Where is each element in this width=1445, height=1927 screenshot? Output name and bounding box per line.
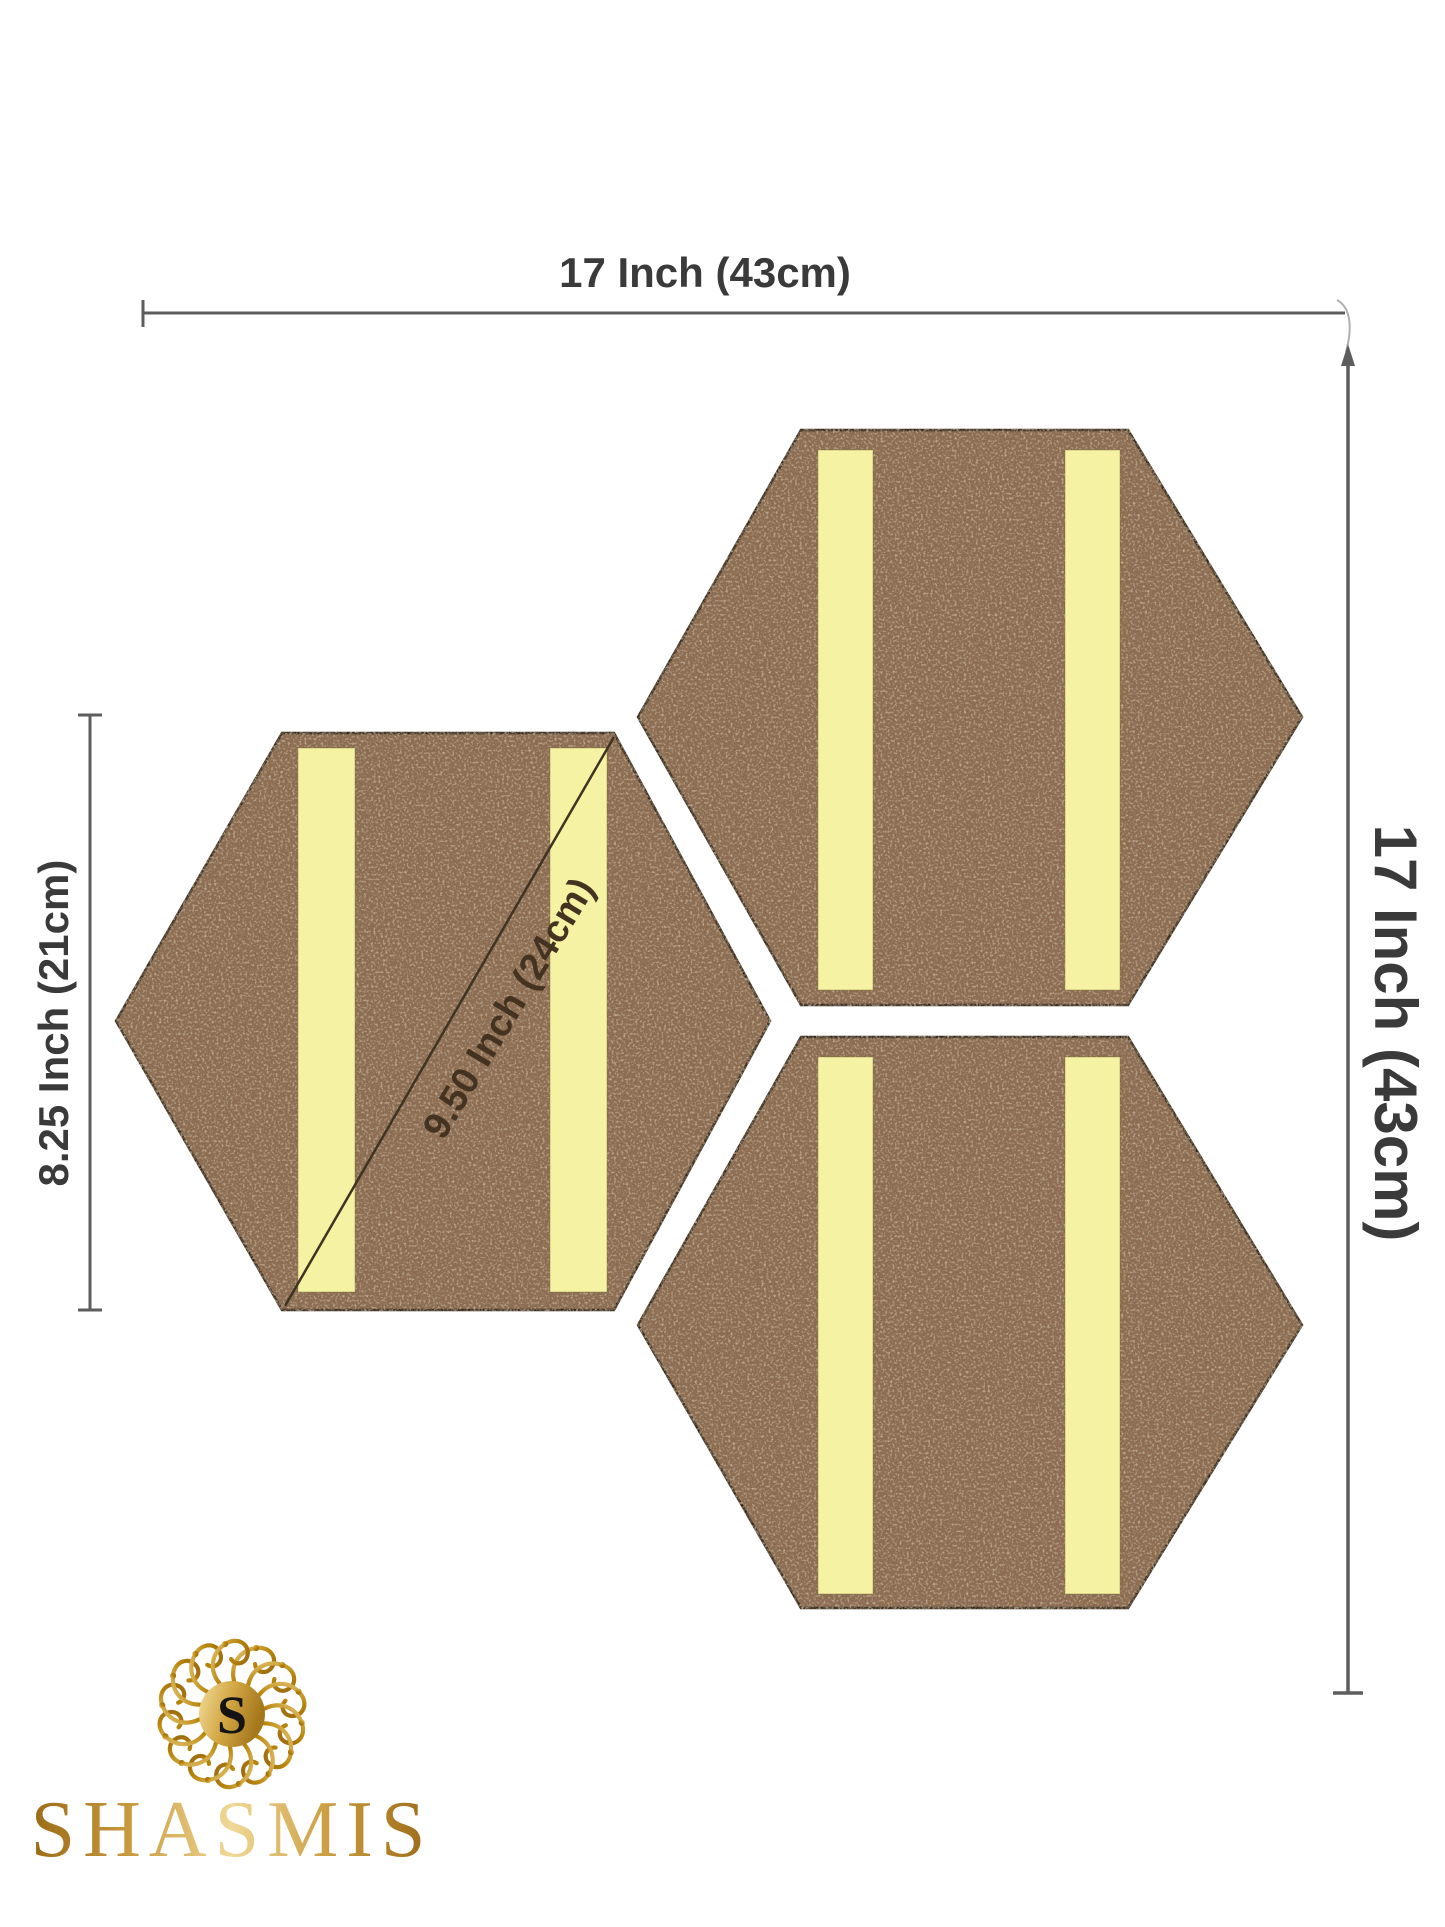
- brand-logo: S SHASMIS: [31, 1634, 434, 1874]
- dimension-arrow-up: [1341, 344, 1355, 366]
- cork-hexagon-tile-left: [116, 733, 770, 1310]
- width-dimension-label: 17 Inch (43cm): [405, 250, 1005, 296]
- tile-height-dimension-label: 8.25 Inch (21cm): [31, 723, 77, 1323]
- cork-hexagon-tile-top-right: [638, 430, 1302, 1005]
- product-dimension-diagram: S SHASMIS 17 Inch (43cm) 17 Inch (43cm) …: [0, 0, 1445, 1927]
- brand-monogram: S: [217, 1685, 247, 1745]
- cork-tiles-group: [116, 430, 1302, 1608]
- adhesive-strip: [818, 1057, 873, 1594]
- adhesive-strip: [1065, 450, 1120, 990]
- dimension-corner-curve: [1337, 300, 1350, 352]
- adhesive-strip: [1065, 1057, 1120, 1594]
- cork-hexagon-tile-bottom-right: [638, 1037, 1302, 1608]
- brand-wordmark: SHASMIS: [31, 1786, 434, 1874]
- adhesive-strip: [818, 450, 873, 990]
- adhesive-strip: [298, 748, 355, 1292]
- height-dimension-label: 17 Inch (43cm): [1362, 733, 1428, 1333]
